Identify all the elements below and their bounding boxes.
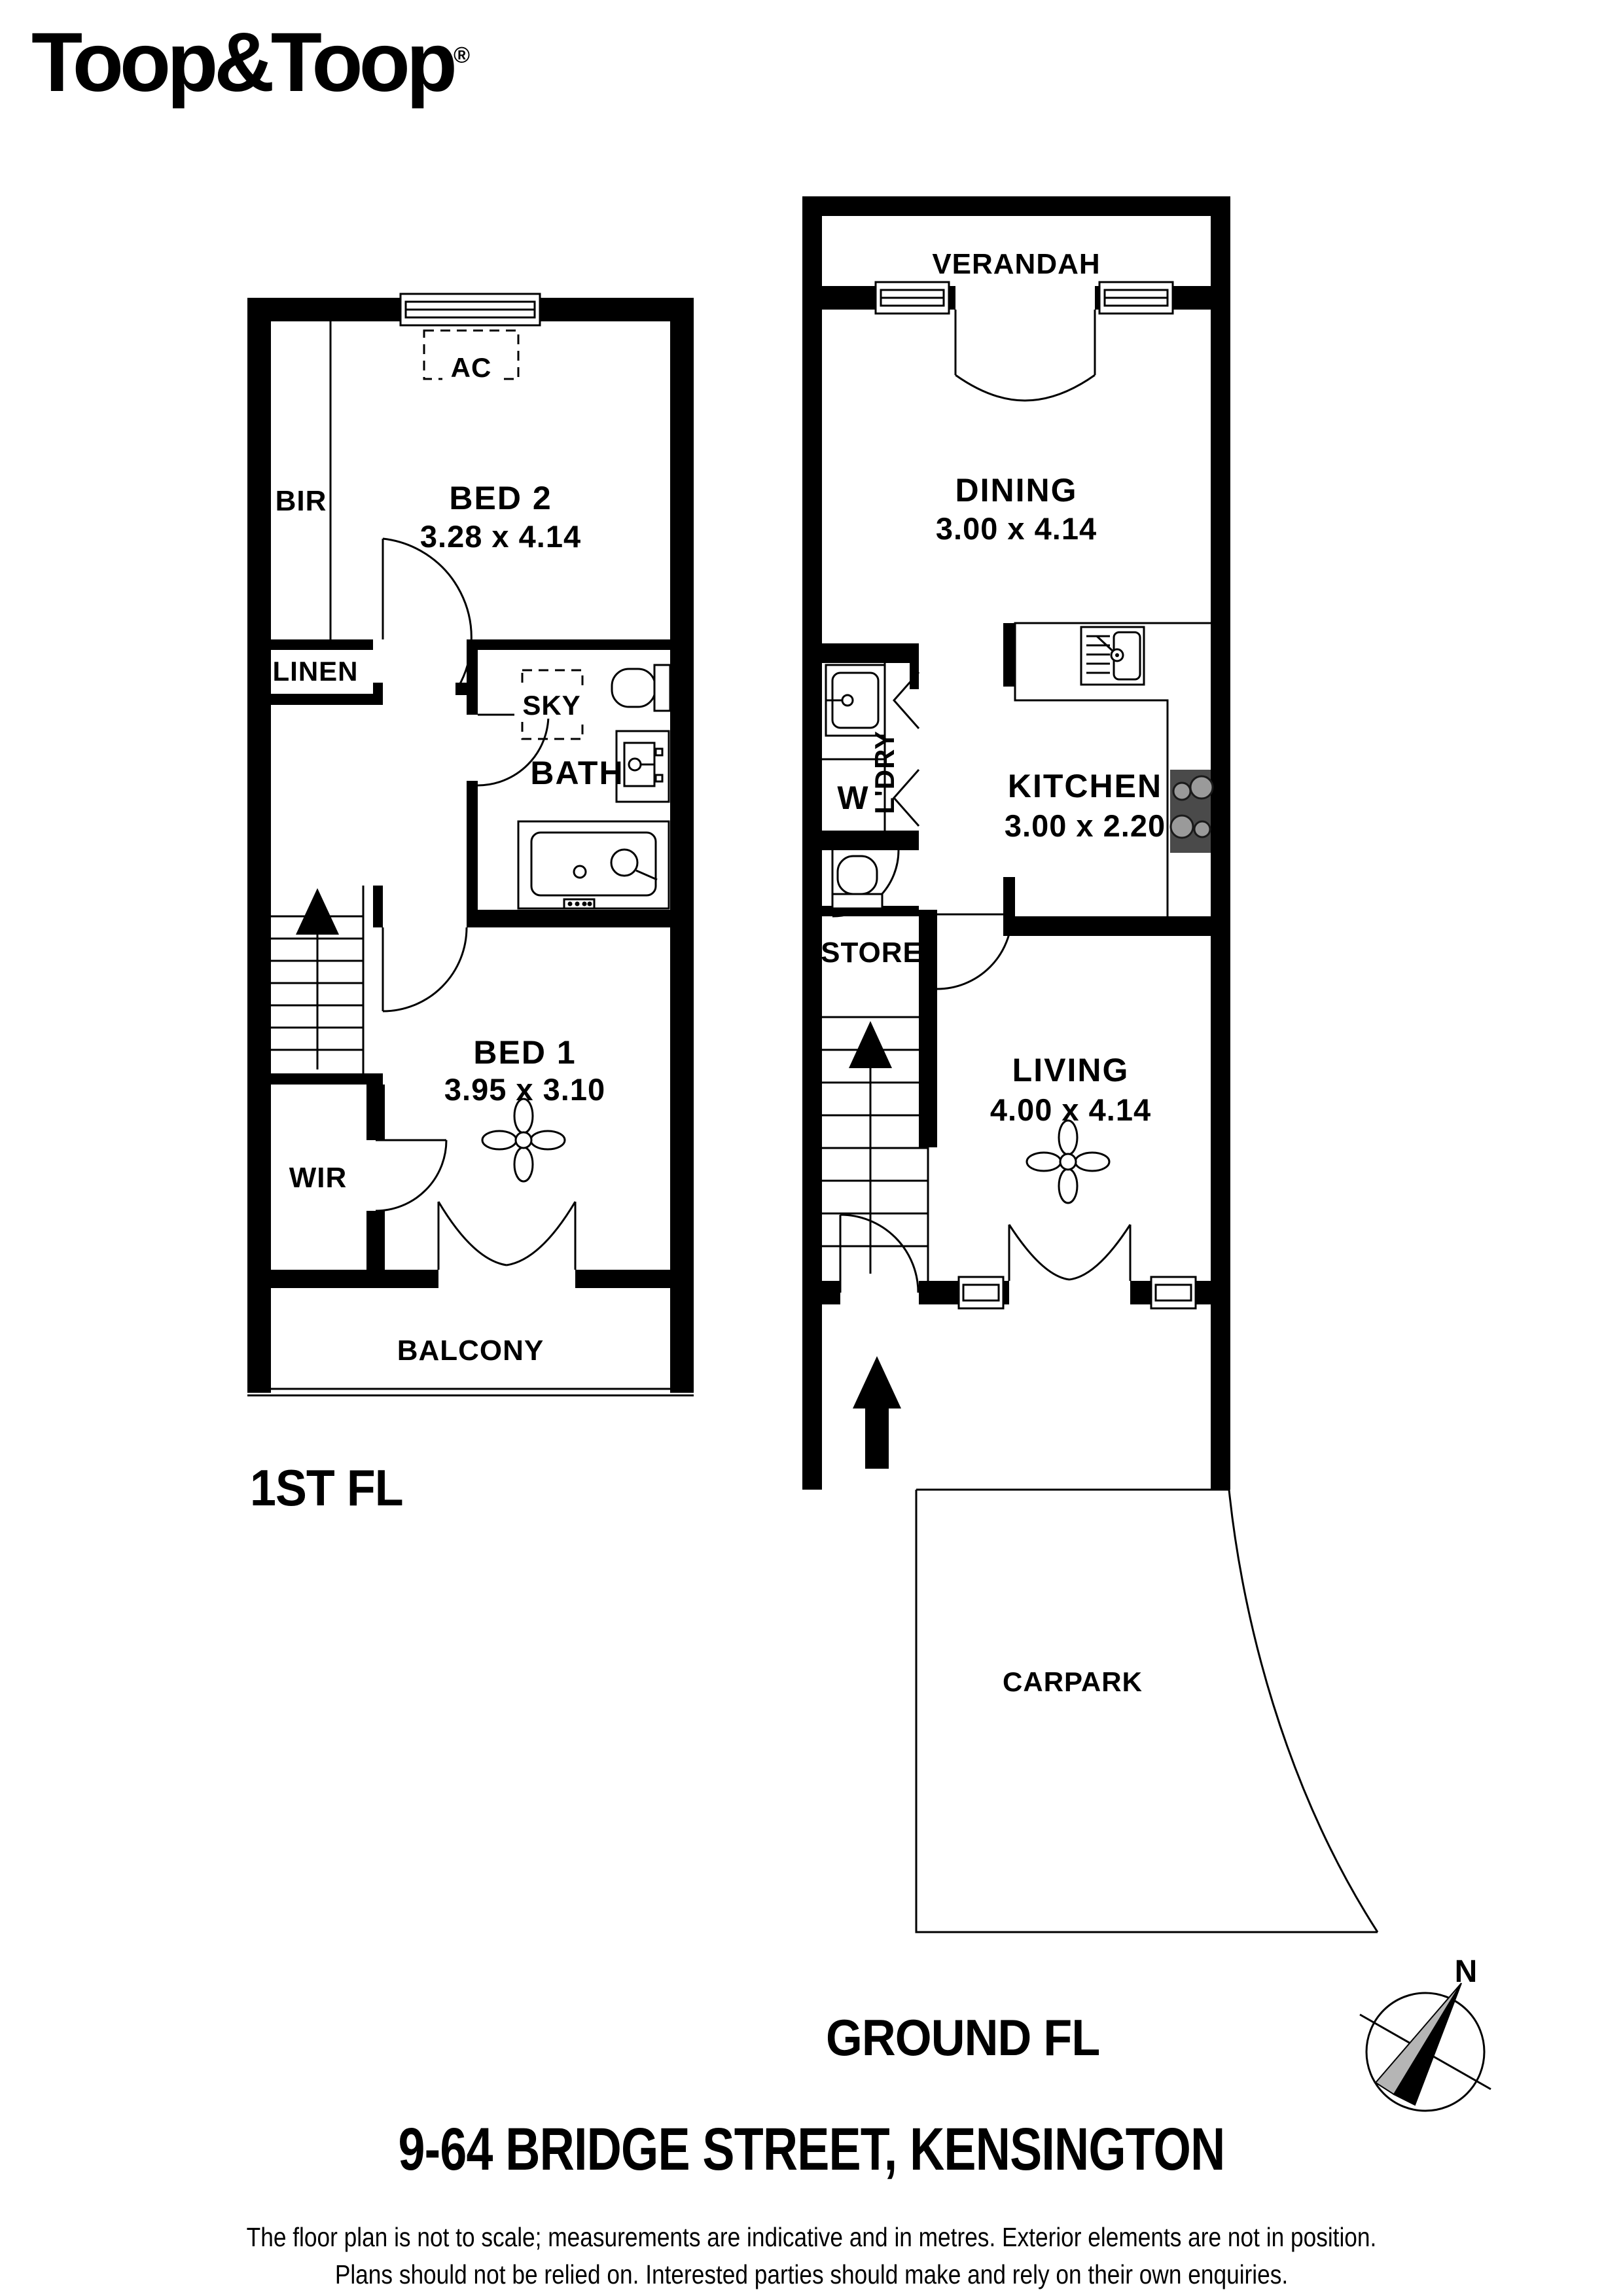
bath-label: BATH: [530, 755, 624, 791]
skylight-label: SKY: [522, 690, 580, 721]
fan-blade: [1075, 1153, 1109, 1171]
ceiling-fan-icon: [482, 1099, 565, 1181]
wall: [467, 781, 478, 910]
burner: [1190, 776, 1213, 798]
wall: [1003, 916, 1230, 936]
first-floor-stairs: [271, 886, 363, 1073]
first-floor-plan: AC: [247, 294, 694, 1395]
bed2-dims: 3.28 x 4.14: [420, 519, 581, 554]
door-swing: [840, 1215, 918, 1293]
ac-unit: AC: [424, 331, 518, 383]
wall: [1211, 196, 1230, 1490]
kitchen-dims: 3.00 x 2.20: [1005, 808, 1166, 843]
wall: [802, 643, 919, 663]
door-swing: [383, 927, 467, 1011]
toilet-cistern: [654, 665, 670, 711]
fan-hub: [1060, 1154, 1076, 1170]
carpark-curved-edge: [1229, 1490, 1378, 1932]
entry-arrow-icon: [853, 1356, 901, 1469]
wall: [670, 298, 694, 1393]
french-door-swing: [1069, 1225, 1130, 1280]
skylight: SKY: [514, 670, 589, 739]
wall: [366, 1211, 385, 1270]
wall: [575, 1270, 694, 1288]
ac-label: AC: [451, 352, 492, 383]
burner: [1173, 783, 1190, 800]
wall: [247, 1270, 438, 1288]
disclaimer-line-2: Plans should not be relied on. Intereste…: [114, 2256, 1510, 2293]
wir-label: WIR: [289, 1162, 348, 1194]
laundry-label: L'DRY: [869, 730, 900, 814]
door-swing: [937, 914, 1012, 989]
wall: [373, 886, 383, 927]
compass-needle-black: [1394, 1983, 1461, 2105]
tap-icon: [842, 695, 853, 706]
window-frame: [1151, 1277, 1196, 1308]
window: [959, 1277, 1196, 1308]
fan-blade: [482, 1131, 516, 1149]
bed1-label: BED 1: [473, 1034, 576, 1071]
grate-dot: [582, 902, 587, 906]
wall: [1196, 1281, 1211, 1304]
window: [876, 282, 1173, 314]
fan-hub: [516, 1132, 531, 1148]
tap-icon: [629, 759, 641, 770]
french-door-swing: [1025, 375, 1095, 401]
living-label: LIVING: [1012, 1052, 1130, 1088]
bir-label: BIR: [276, 485, 327, 517]
french-door-swing: [955, 375, 1025, 401]
wall: [1130, 1281, 1151, 1304]
dining-dims: 3.00 x 4.14: [936, 511, 1097, 546]
wall: [247, 639, 373, 650]
balcony-label: BALCONY: [397, 1335, 544, 1367]
wall: [467, 910, 670, 927]
burner: [1194, 821, 1210, 837]
north-label: N: [1455, 1954, 1478, 1989]
kitchen-label: KITCHEN: [1008, 768, 1162, 804]
floorplan-drawing: AC: [0, 0, 1623, 2296]
property-address: 9-64 BRIDGE STREET, KENSINGTON: [162, 2115, 1461, 2184]
disclaimer-line-1: The floor plan is not to scale; measurem…: [114, 2219, 1510, 2256]
french-door-swing: [438, 1202, 507, 1265]
ceiling-fan-icon: [1027, 1121, 1109, 1203]
burner: [1171, 816, 1193, 838]
door-jamb: [455, 683, 467, 695]
wall: [802, 831, 919, 850]
door-swing: [383, 539, 471, 687]
wall: [822, 286, 876, 310]
fan-blade: [1027, 1153, 1061, 1171]
wall: [247, 1073, 383, 1085]
bed1-dims: 3.95 x 3.10: [444, 1072, 605, 1107]
fan-blade: [1059, 1169, 1077, 1203]
wall: [247, 694, 383, 705]
fan-blade: [531, 1131, 565, 1149]
fan-blade: [514, 1147, 533, 1181]
dining-label: DINING: [955, 472, 1078, 509]
first-floor-title: 1ST FL: [250, 1458, 403, 1518]
toilet-icon: [838, 856, 877, 894]
carpark-outline: CARPARK: [916, 1490, 1378, 1932]
window: [401, 294, 540, 325]
french-door-swing: [1009, 1225, 1069, 1280]
verandah-label: VERANDAH: [932, 248, 1100, 280]
washer-label: W: [837, 780, 869, 816]
linen-label: LINEN: [273, 656, 359, 687]
wall: [366, 1085, 385, 1140]
ground-floor-plan: VERANDAH DINING 3.00 x 4.14 L'DRY W KITC…: [802, 196, 1230, 1490]
ground-floor-stairs: [822, 1017, 928, 1281]
wall: [1173, 286, 1211, 310]
carpark-label: CARPARK: [1003, 1666, 1143, 1697]
stair-direction-arrow: [849, 1021, 892, 1068]
living-dims: 4.00 x 4.14: [990, 1092, 1151, 1127]
grate-dot: [568, 902, 573, 906]
store-label: STORE: [821, 937, 923, 969]
wall: [467, 639, 670, 650]
store-door: [937, 914, 1012, 989]
wall: [919, 1281, 959, 1304]
floorplan-page: Toop&Toop®: [0, 0, 1623, 2296]
window-frame: [959, 1277, 1003, 1308]
grate-dot: [588, 902, 592, 906]
ground-floor-title: GROUND FL: [826, 2008, 1099, 2068]
bed2-label: BED 2: [449, 480, 552, 516]
door-jamb: [373, 683, 383, 705]
wall: [1003, 877, 1015, 916]
wall: [247, 298, 271, 1393]
french-door-swing: [507, 1202, 575, 1265]
wall: [1003, 623, 1015, 687]
toilet-icon: [612, 669, 655, 707]
toilet-cistern: [832, 894, 882, 908]
tap-dot: [1115, 653, 1119, 657]
wall: [822, 1281, 840, 1304]
stair-direction-arrow: [296, 888, 339, 935]
grate-dot: [575, 902, 580, 906]
disclaimer: The floor plan is not to scale; measurem…: [114, 2219, 1510, 2293]
dining-french-doors: [955, 310, 1095, 401]
compass: N: [1360, 1954, 1491, 2111]
shower-rose-icon: [611, 850, 637, 876]
door-swing: [376, 1140, 446, 1211]
carpark-edge: [916, 1490, 1378, 1932]
wall: [802, 196, 1230, 216]
